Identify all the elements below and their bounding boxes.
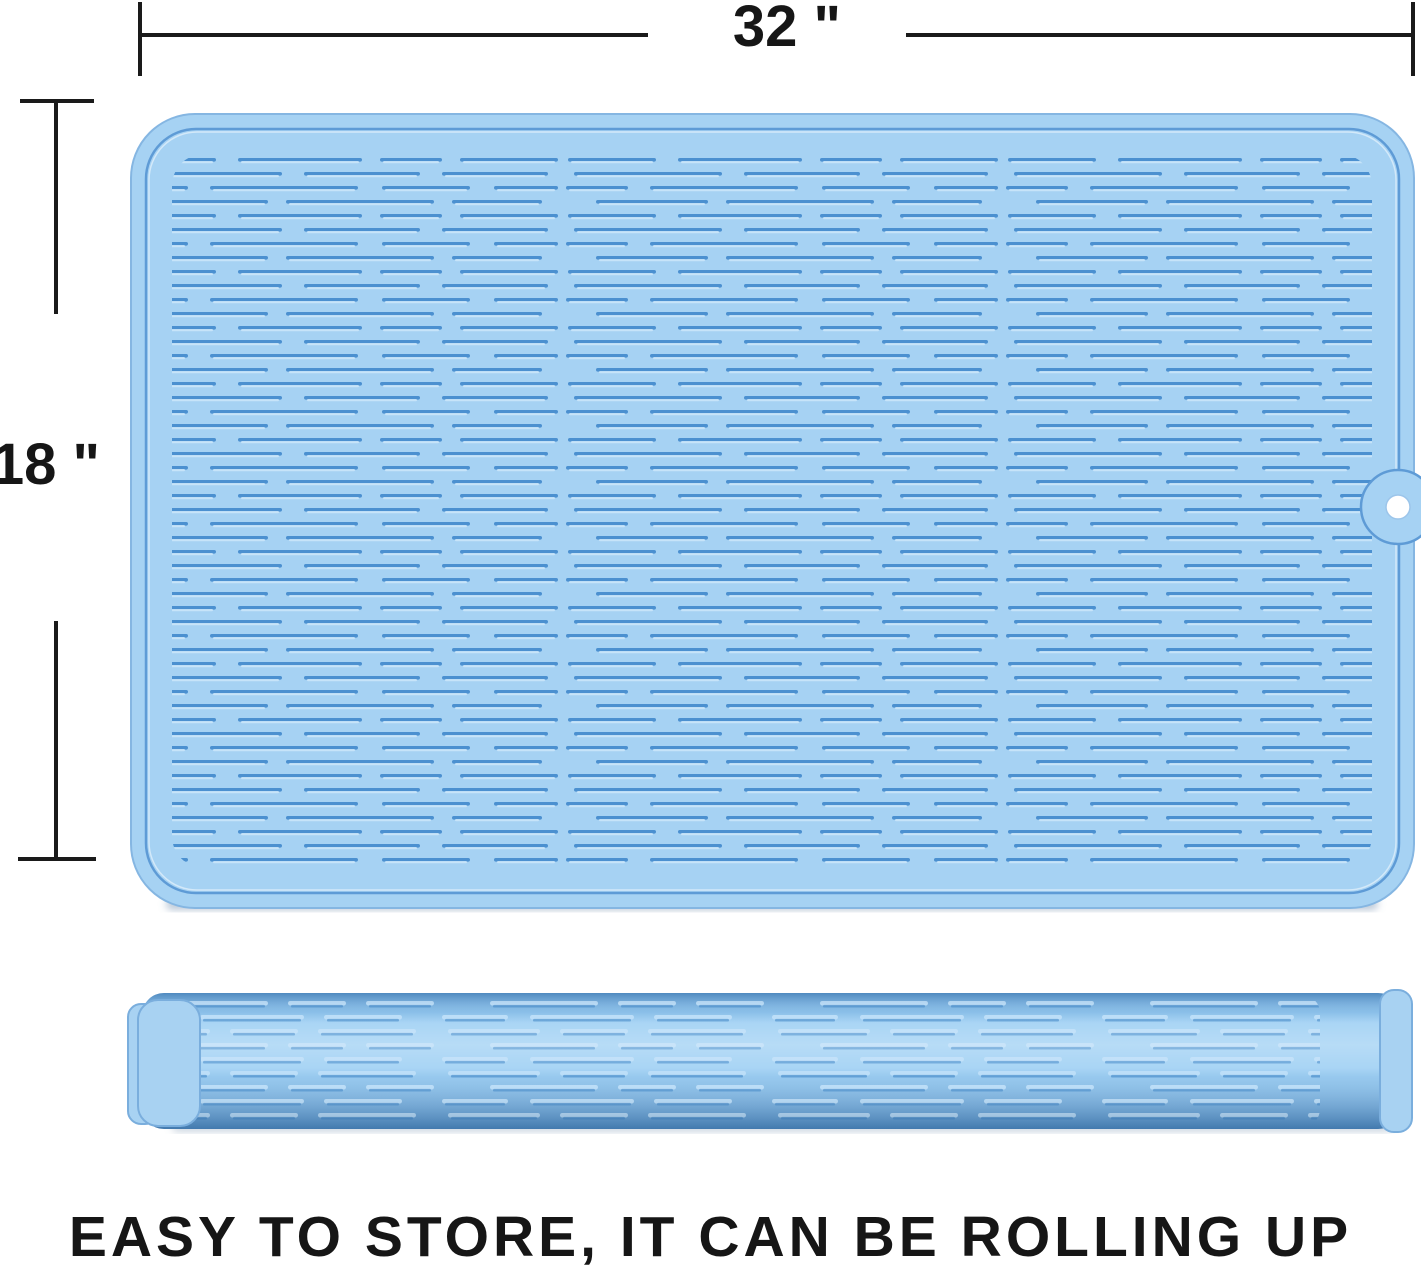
roll-left-cap — [138, 1000, 200, 1126]
roll-shading — [142, 993, 1400, 1129]
product-image: 32 " 18 " EASY TO STORE, IT CAN BE ROLLI… — [0, 0, 1421, 1276]
width-dimension-line-right — [906, 33, 1413, 37]
caption-text: EASY TO STORE, IT CAN BE ROLLING UP — [0, 1207, 1421, 1267]
width-dimension-left-tick — [138, 2, 142, 76]
width-dimension-label: 32 " — [657, 0, 917, 56]
flat-mat-image — [126, 110, 1418, 912]
roll-right-rim — [1380, 990, 1412, 1132]
width-dimension-right-tick — [1411, 2, 1415, 76]
width-dimension-line-left — [140, 33, 648, 37]
hang-hole — [1386, 495, 1410, 519]
height-dimension-line-upper — [54, 101, 58, 314]
height-dimension-line-lower — [54, 621, 58, 860]
height-dimension-label: 18 " — [0, 436, 102, 494]
mat-texture — [172, 154, 1372, 868]
rolled-mat-image — [112, 982, 1420, 1152]
